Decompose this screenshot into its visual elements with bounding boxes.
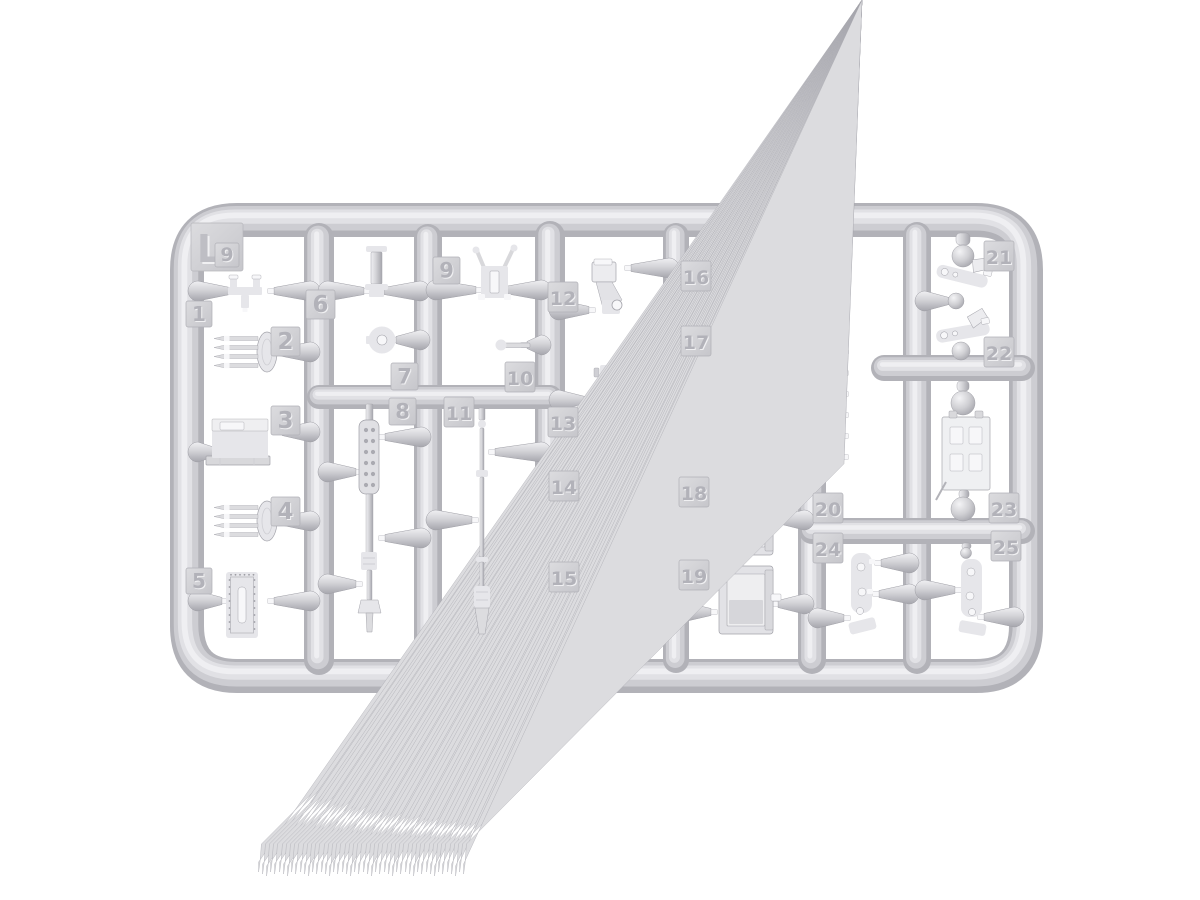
- svg-text:11: 11: [446, 403, 472, 425]
- part-tag-18: 1818: [679, 477, 709, 507]
- svg-text:7: 7: [397, 365, 412, 389]
- svg-text:12: 12: [550, 288, 576, 310]
- part-2: [214, 332, 277, 372]
- svg-text:18: 18: [681, 483, 707, 505]
- svg-text:2: 2: [277, 329, 293, 355]
- part-tag-8: 88: [389, 398, 416, 425]
- svg-text:3: 3: [277, 408, 293, 434]
- part-tag-7: 77: [391, 363, 418, 390]
- part-8: [358, 404, 381, 632]
- part-tag-6: 66: [306, 290, 335, 319]
- svg-text:4: 4: [277, 499, 293, 525]
- part-tag-3: 33: [271, 406, 300, 435]
- svg-text:24: 24: [815, 539, 841, 561]
- svg-text:17: 17: [683, 332, 709, 354]
- part-tag-20: 2020: [813, 493, 843, 523]
- svg-text:15: 15: [551, 568, 577, 590]
- svg-text:8: 8: [395, 400, 410, 424]
- part-tag-4: 44: [271, 497, 300, 526]
- svg-text:13: 13: [550, 413, 576, 435]
- mold-mark-tag: 99: [215, 243, 239, 267]
- part-12: [592, 259, 622, 314]
- part-tag-11: 1111: [444, 397, 474, 427]
- part-22-chain: [933, 307, 992, 360]
- part-tag-19: 1919: [679, 560, 709, 590]
- svg-text:20: 20: [815, 499, 841, 521]
- part-tag-10: 1010: [505, 362, 535, 392]
- svg-text:23: 23: [991, 499, 1017, 521]
- svg-text:21: 21: [986, 247, 1012, 269]
- svg-text:16: 16: [683, 267, 709, 289]
- part-5: [226, 572, 258, 638]
- svg-text:14: 14: [551, 477, 577, 499]
- part-tag-13: 1313: [548, 407, 578, 437]
- part-tag-25: 2525: [991, 531, 1021, 561]
- part-25: [958, 543, 987, 636]
- part-6: [365, 246, 388, 297]
- part-tag-2: 22: [271, 327, 300, 356]
- svg-text:6: 6: [312, 292, 328, 318]
- svg-text:1: 1: [192, 302, 206, 326]
- svg-text:5: 5: [192, 569, 206, 593]
- part-tag-23: 2323: [989, 493, 1019, 523]
- part-4: [214, 501, 277, 541]
- part-tag-17: 1717: [681, 326, 711, 356]
- model-kit-sprue-image: LL99112233445566778899101011111212131314…: [0, 0, 1200, 900]
- part-7: [366, 327, 396, 354]
- part-tag-15: 1515: [549, 562, 579, 592]
- part-tag-16: 1616: [681, 261, 711, 291]
- svg-text:19: 19: [681, 566, 707, 588]
- part-tag-22: 2222: [984, 337, 1014, 367]
- part-tag-14: 1414: [549, 471, 579, 501]
- part-10: [496, 340, 531, 351]
- part-tag-1: 11: [186, 301, 212, 327]
- part-3: [206, 419, 270, 465]
- product-photo: LL99112233445566778899101011111212131314…: [0, 0, 1200, 900]
- svg-text:9: 9: [220, 244, 233, 266]
- part-23-chain: [936, 381, 990, 521]
- part-tag-5: 55: [186, 568, 212, 594]
- part-tag-21: 2121: [984, 241, 1014, 271]
- svg-text:9: 9: [439, 259, 454, 283]
- svg-text:10: 10: [507, 368, 533, 390]
- spike-comb: [259, 0, 862, 876]
- part-tag-9: 99: [433, 257, 460, 284]
- part-tag-12: 1212: [548, 282, 578, 312]
- part-1: [228, 275, 262, 312]
- part-tag-24: 2424: [813, 533, 843, 563]
- svg-text:25: 25: [993, 537, 1019, 559]
- svg-text:22: 22: [986, 343, 1012, 365]
